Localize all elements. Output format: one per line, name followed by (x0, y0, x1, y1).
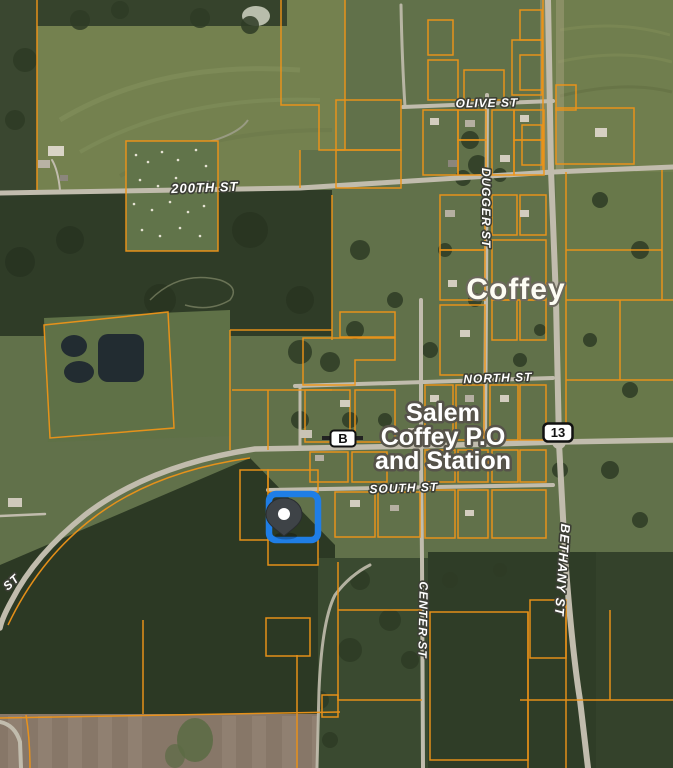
pond-large (98, 334, 144, 382)
pond-small-upper (61, 335, 87, 357)
pond-small-lower (64, 361, 94, 383)
map-viewport[interactable]: OLIVE ST 200TH ST DUGGER ST NORTH ST SOU… (0, 0, 673, 768)
street-label-south-st: SOUTH ST (369, 480, 439, 496)
street-label-dugger-st: DUGGER ST (479, 168, 493, 249)
route-shield-13: 13 (544, 424, 573, 442)
town-label-coffey: Coffey (466, 273, 565, 306)
street-label-200th-st: 200TH ST (170, 179, 239, 196)
route-shield-b-text: B (338, 431, 347, 446)
street-label-center-st: CENTER ST (415, 581, 430, 659)
map-canvas[interactable]: OLIVE ST 200TH ST DUGGER ST NORTH ST SOU… (0, 0, 673, 768)
poi-label-line-3: and Station (375, 447, 511, 475)
route-shield-13-text: 13 (551, 425, 565, 440)
road-center-st (421, 300, 423, 768)
street-label-olive-st: OLIVE ST (455, 95, 519, 110)
street-label-north-st: NORTH ST (463, 370, 533, 386)
